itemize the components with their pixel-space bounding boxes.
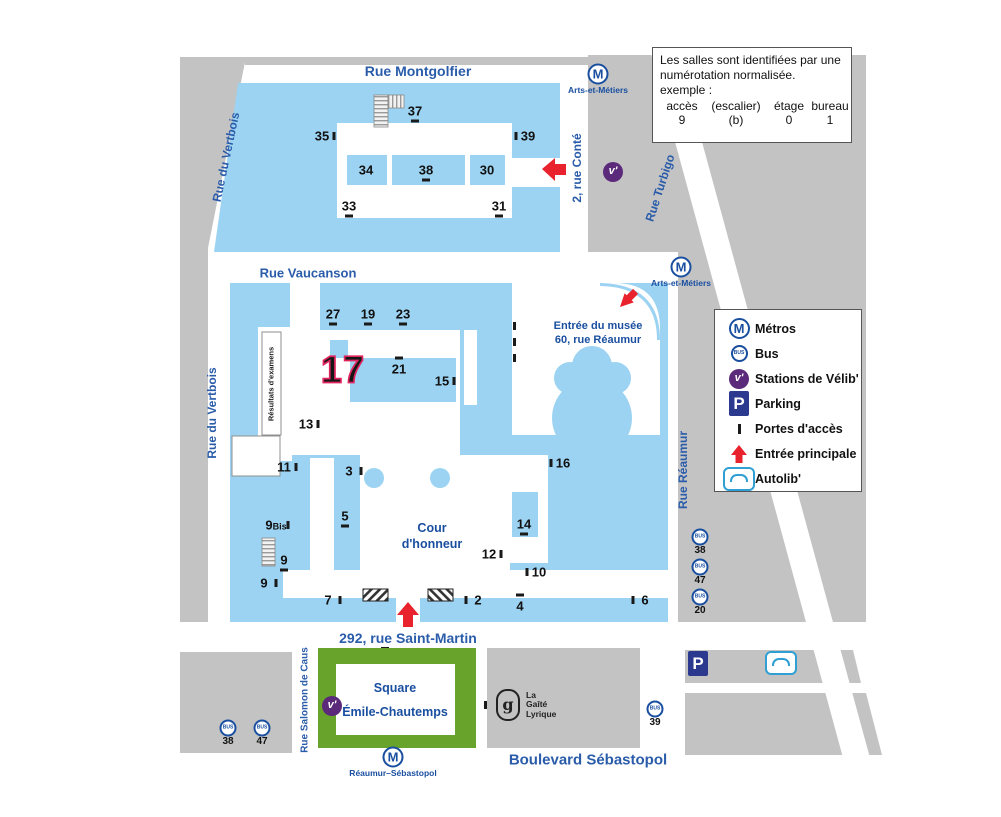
legend-label-autolib: Autolib'	[755, 472, 801, 486]
museum-entrance-line2: 60, rue Réaumur	[554, 333, 643, 347]
note-val-bureau: 1	[810, 113, 850, 127]
room-numbering-note: Les salles sont identifiées par une numé…	[652, 47, 852, 143]
cour-honneur-label: Cour d'honneur	[402, 520, 463, 552]
legend-row-portes: Portes d'accès	[723, 416, 861, 441]
legend-label-bus: Bus	[755, 347, 779, 361]
gaite-lyrique-label: La Gaîté Lyrique	[526, 691, 556, 720]
square-line1: Square	[342, 676, 448, 700]
square-emile-chautemps-label: Square Émile-Chautemps	[342, 676, 448, 724]
museum-entrance-label: Entrée du musée 60, rue Réaumur	[554, 319, 643, 347]
gaite-lyrique-poi: g La Gaîté Lyrique	[496, 689, 556, 721]
legend-row-velib: v' Stations de Vélib'	[723, 366, 861, 391]
legend-label-portes: Portes d'accès	[755, 422, 843, 436]
highlighted-access-17: 17	[321, 350, 365, 393]
legend-row-entree: Entrée principale	[723, 441, 861, 466]
legend-row-metros: M Métros	[723, 316, 861, 341]
note-col-etage: étage	[768, 99, 810, 113]
cour-honneur-line2: d'honneur	[402, 536, 463, 552]
note-col-escalier: (escalier)	[704, 99, 768, 113]
legend-label-velib: Stations de Vélib'	[755, 372, 859, 386]
legend-label-parking: Parking	[755, 397, 801, 411]
note-col-bureau: bureau	[810, 99, 850, 113]
bus-icon: BUS	[731, 345, 748, 362]
note-val-etage: 0	[768, 113, 810, 127]
parking-icon: P	[688, 651, 708, 676]
map-legend: M Métros BUS Bus v' Stations de Vélib' P…	[714, 309, 862, 492]
autolib-icon	[765, 651, 797, 675]
legend-label-metros: Métros	[755, 322, 796, 336]
velib-icon: v'	[729, 369, 749, 389]
resultats-examens-label: Résultats d'examens	[267, 347, 276, 421]
gaite-line3: Lyrique	[526, 710, 556, 720]
entrance-arrow-icon	[730, 444, 748, 464]
legend-row-parking: P Parking	[723, 391, 861, 416]
note-col-acces: accès	[660, 99, 704, 113]
legend-label-entree: Entrée principale	[755, 447, 856, 461]
note-val-acces: 9	[660, 113, 704, 127]
note-text-2: exemple :	[660, 83, 847, 98]
cour-honneur-line1: Cour	[402, 520, 463, 536]
square-line2: Émile-Chautemps	[342, 700, 448, 724]
parking-icon: P	[729, 391, 749, 416]
cnam-campus-map: Rue MontgolfierRue du VertboisRue du Ver…	[0, 0, 1001, 817]
autolib-icon	[723, 467, 755, 491]
legend-row-bus: BUS Bus	[723, 341, 861, 366]
door-tick-icon	[738, 424, 741, 434]
note-example-grid: accès (escalier) étage bureau 9 (b) 0 1	[660, 99, 847, 127]
note-val-escalier: (b)	[704, 113, 768, 127]
note-text-1: Les salles sont identifiées par une numé…	[660, 53, 847, 83]
museum-entrance-line1: Entrée du musée	[554, 319, 643, 333]
gaite-lyrique-logo: g	[496, 689, 520, 721]
metro-icon: M	[729, 318, 750, 339]
legend-row-autolib: Autolib'	[723, 466, 861, 491]
